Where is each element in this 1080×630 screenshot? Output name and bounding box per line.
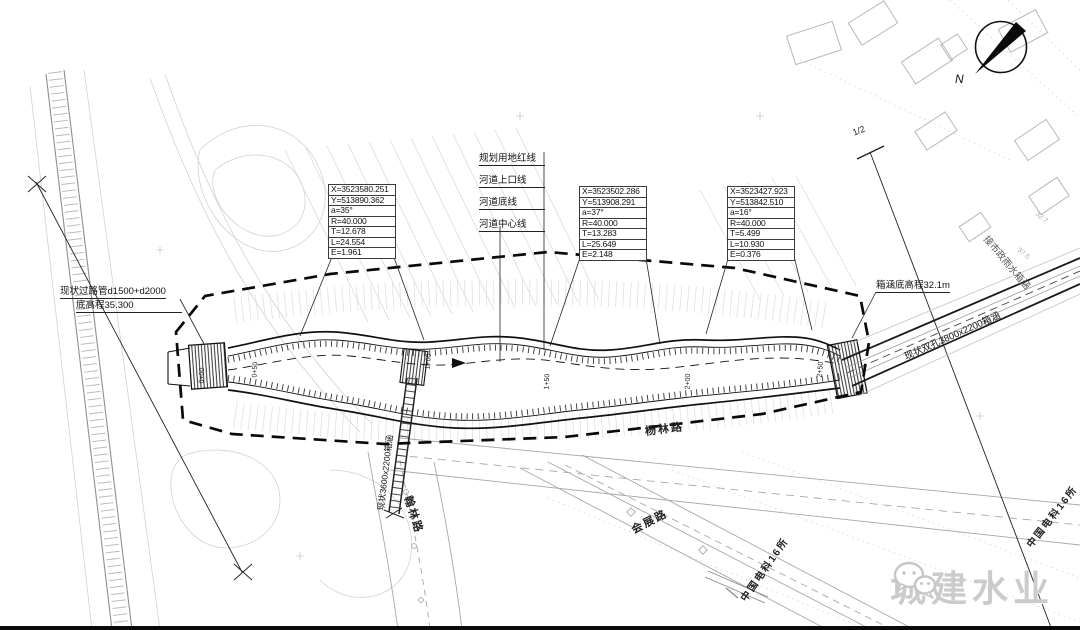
curve-external: E=1.961 [328, 247, 396, 259]
curve-x: X=3523502.286 [579, 186, 647, 198]
legend-planning-red-line: 规划用地红线 [479, 153, 545, 166]
station-1+50: 1+50 [544, 374, 552, 390]
legend-channel-centerline: 河道中心线 [479, 219, 545, 232]
double-culvert-3800x2200 [836, 248, 1080, 396]
channel-centerline [228, 355, 840, 370]
culvert-invert-note: 箱涵底高程32.1m [876, 280, 950, 293]
section-line-right [857, 146, 1052, 630]
inlet-structure [189, 343, 228, 389]
curve-x: X=3523427.923 [727, 186, 795, 198]
frame-bottom-border [0, 626, 1080, 630]
station-2+00: 2+00 [685, 374, 693, 390]
curve-external: E=2.148 [579, 249, 647, 261]
curve-x: X=3523580.251 [328, 184, 396, 196]
background-buildings [787, 1, 1070, 242]
flow-arrow [452, 358, 466, 368]
wechat-icon [890, 560, 938, 602]
curve-table-1: X=3523580.251 Y=513890.362 a=35° R=40.00… [328, 185, 396, 259]
legend-channel-bottom-line: 河道底线 [479, 197, 545, 210]
channel-bottom-line [228, 388, 840, 428]
river-channel [168, 332, 840, 429]
curve-external: E=0.376 [727, 249, 795, 261]
curve-table-2: X=3523502.286 Y=513908.291 a=37° R=40.00… [579, 187, 647, 261]
station-2+50: 2+50 [817, 361, 825, 377]
station-0+00: 0+00 [199, 368, 207, 384]
watermark: 城建水业 [890, 560, 1054, 612]
pipe-note-line2: 底高程35.300 [76, 300, 182, 313]
engineering-plan-drawing: X=3523580.251 Y=513890.362 a=35° R=40.00… [0, 0, 1080, 630]
legend-channel-top-line: 河道上口线 [479, 175, 545, 188]
background-parcels [30, 0, 1080, 630]
pipe-note-line1: 现状过路管d1500+d2000 [60, 286, 166, 299]
plan-linework [0, 0, 1080, 630]
curve-table-3: X=3523427.923 Y=513842.510 a=16° R=40.00… [727, 187, 795, 261]
station-1+00: 1+00 [425, 353, 433, 369]
channel-bottom-inner [228, 380, 840, 420]
left-ditch-corridor [46, 70, 132, 630]
north-label: N [955, 72, 964, 86]
station-0+50: 0+50 [252, 362, 260, 378]
